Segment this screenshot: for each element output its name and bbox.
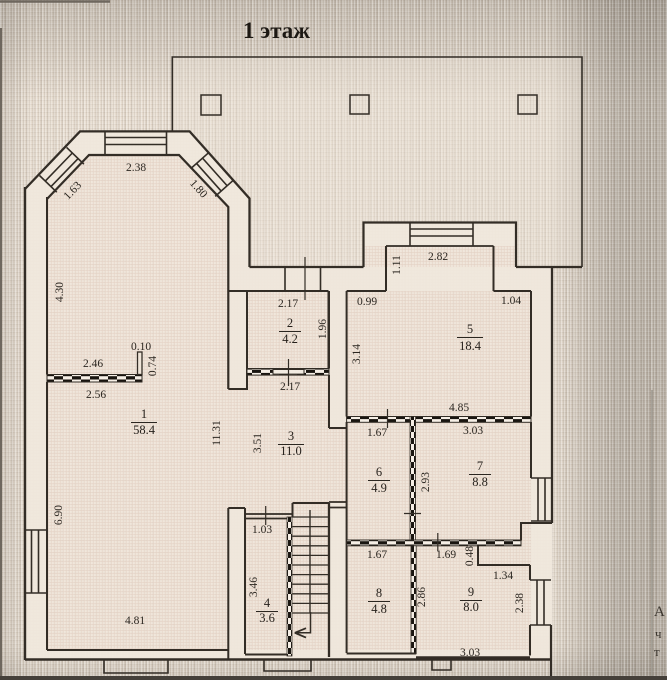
svg-text:3: 3	[288, 429, 294, 443]
svg-text:2.17: 2.17	[280, 381, 300, 393]
svg-text:1: 1	[141, 407, 147, 421]
svg-text:8.0: 8.0	[463, 600, 479, 614]
svg-text:4: 4	[264, 596, 271, 610]
svg-text:4.85: 4.85	[449, 402, 469, 414]
svg-text:3.03: 3.03	[463, 425, 483, 437]
svg-text:т: т	[654, 644, 660, 659]
svg-text:2.82: 2.82	[428, 251, 448, 263]
svg-text:1.04: 1.04	[501, 295, 521, 307]
svg-text:6.90: 6.90	[53, 505, 65, 525]
svg-text:1.67: 1.67	[367, 427, 387, 439]
svg-text:3.51: 3.51	[252, 433, 264, 453]
svg-text:0.10: 0.10	[131, 341, 151, 353]
svg-text:1.34: 1.34	[493, 570, 513, 582]
svg-text:3.03: 3.03	[460, 647, 480, 659]
svg-text:58.4: 58.4	[133, 423, 156, 437]
svg-text:18.4: 18.4	[459, 339, 482, 353]
svg-text:8: 8	[376, 586, 382, 600]
svg-text:2.86: 2.86	[416, 587, 428, 607]
svg-text:3.6: 3.6	[259, 611, 275, 625]
svg-text:5: 5	[467, 322, 473, 336]
svg-text:4.30: 4.30	[54, 282, 66, 302]
svg-text:4.2: 4.2	[282, 332, 298, 346]
svg-text:2: 2	[287, 316, 293, 330]
svg-text:2.46: 2.46	[83, 358, 103, 370]
svg-text:0.99: 0.99	[357, 296, 377, 308]
svg-text:2.93: 2.93	[420, 472, 432, 492]
svg-text:6: 6	[376, 465, 382, 479]
svg-text:2.56: 2.56	[86, 389, 106, 401]
svg-text:8.8: 8.8	[472, 475, 488, 489]
svg-text:ч: ч	[655, 626, 662, 641]
svg-text:2.38: 2.38	[514, 593, 526, 613]
svg-text:11.0: 11.0	[280, 444, 301, 458]
svg-text:4.9: 4.9	[371, 481, 387, 495]
svg-text:3.46: 3.46	[248, 577, 260, 597]
svg-text:А: А	[654, 604, 665, 620]
svg-text:4.8: 4.8	[371, 602, 387, 616]
svg-text:7: 7	[477, 459, 483, 473]
svg-text:2.38: 2.38	[126, 162, 146, 174]
svg-text:2.17: 2.17	[278, 298, 298, 310]
svg-text:1 этаж: 1 этаж	[243, 18, 310, 43]
svg-text:1.03: 1.03	[252, 524, 272, 536]
svg-text:1.69: 1.69	[436, 549, 456, 561]
svg-text:3.14: 3.14	[351, 344, 363, 364]
svg-text:1.96: 1.96	[317, 319, 329, 339]
svg-text:0.74: 0.74	[147, 356, 159, 376]
svg-text:1.67: 1.67	[367, 549, 387, 561]
svg-text:9: 9	[468, 585, 474, 599]
svg-text:0.48: 0.48	[464, 546, 476, 566]
svg-text:11.31: 11.31	[211, 420, 223, 446]
svg-text:4.81: 4.81	[125, 615, 145, 627]
svg-text:1.11: 1.11	[391, 255, 403, 275]
